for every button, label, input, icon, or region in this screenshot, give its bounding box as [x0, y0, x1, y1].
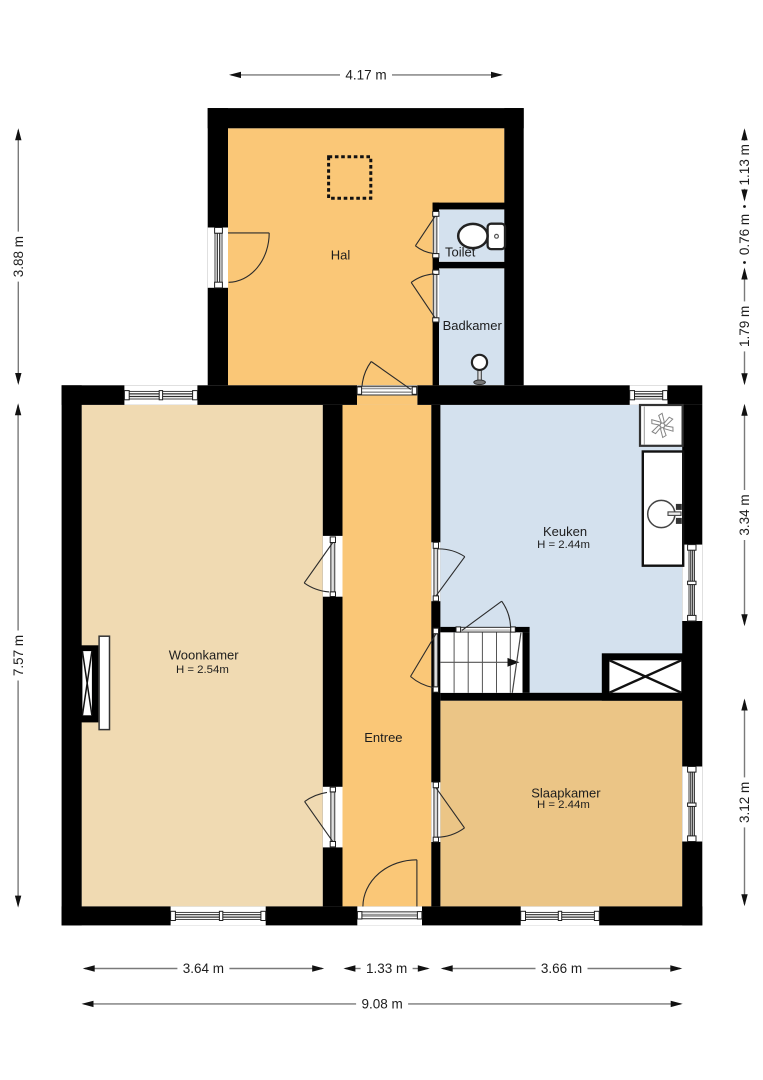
- svg-text:Keuken: Keuken: [543, 524, 587, 539]
- svg-text:3.88 m: 3.88 m: [11, 236, 26, 277]
- svg-text:Woonkamer: Woonkamer: [169, 647, 240, 662]
- svg-text:4.17 m: 4.17 m: [345, 68, 386, 83]
- svg-text:Entree: Entree: [364, 730, 402, 745]
- svg-text:H = 2.54m: H = 2.54m: [176, 664, 229, 676]
- svg-text:3.34 m: 3.34 m: [737, 494, 752, 535]
- svg-text:1.79 m: 1.79 m: [737, 306, 752, 347]
- svg-text:H = 2.44m: H = 2.44m: [537, 539, 590, 551]
- svg-text:Badkamer: Badkamer: [443, 318, 503, 333]
- svg-text:7.57 m: 7.57 m: [11, 635, 26, 676]
- svg-text:9.08 m: 9.08 m: [361, 997, 402, 1012]
- svg-text:Hal: Hal: [331, 248, 351, 263]
- svg-text:Toilet: Toilet: [445, 244, 476, 259]
- svg-text:1.13 m: 1.13 m: [737, 144, 752, 185]
- svg-text:3.12 m: 3.12 m: [737, 782, 752, 823]
- svg-text:0.76 m: 0.76 m: [737, 214, 752, 255]
- svg-text:3.64 m: 3.64 m: [183, 961, 224, 976]
- svg-text:H = 2.44m: H = 2.44m: [537, 799, 590, 811]
- svg-text:1.33 m: 1.33 m: [366, 961, 407, 976]
- svg-text:3.66 m: 3.66 m: [541, 961, 582, 976]
